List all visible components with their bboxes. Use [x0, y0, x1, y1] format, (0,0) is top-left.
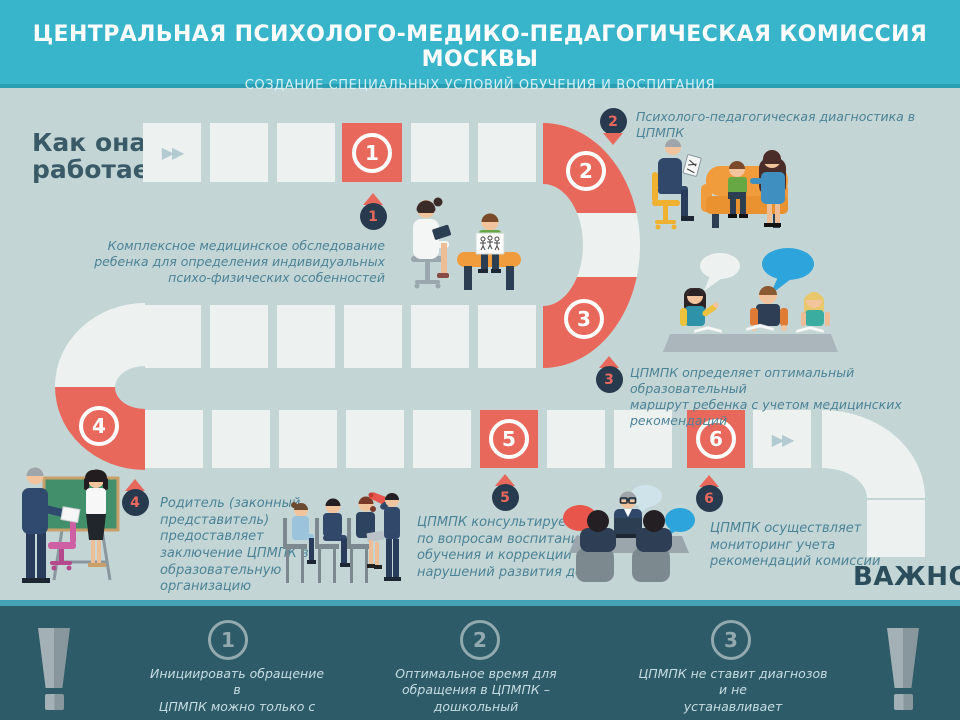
- board-square: [143, 305, 201, 368]
- step-2-number: 2: [566, 151, 606, 191]
- board-square: [210, 305, 268, 368]
- path-turn-exit-inner: [822, 468, 867, 498]
- pin-step-3: 3: [594, 356, 624, 393]
- illustration-children-study: [658, 238, 843, 356]
- board-square: [547, 410, 605, 468]
- illustration-medical-exam: [393, 193, 545, 296]
- board-square-step-5: 5: [480, 410, 538, 468]
- page-subtitle: СОЗДАНИЕ СПЕЦИАЛЬНЫХ УСЛОВИЙ ОБУЧЕНИЯ И …: [0, 78, 960, 93]
- board-square: [212, 410, 270, 468]
- important-item-2-text: Оптимальное время для обращения в ЦПМПК …: [381, 666, 571, 720]
- pin-number: 3: [596, 366, 623, 393]
- board-square: [145, 410, 203, 468]
- important-item-3-text: ЦПМПК не ставит диагнозов и не устанавли…: [638, 666, 828, 720]
- step-1-label: Комплексное медицинское обследование реб…: [94, 238, 385, 286]
- board-square: [346, 410, 404, 468]
- important-item-3-number: 3: [711, 620, 751, 660]
- pin-number: 2: [600, 108, 627, 135]
- illustration-school-handover: [14, 458, 146, 606]
- board-square: [210, 123, 268, 182]
- path-turn-right-inner: [543, 184, 583, 306]
- header: ЦЕНТРАЛЬНАЯ ПСИХОЛОГО-МЕДИКО-ПЕДАГОГИЧЕС…: [0, 0, 960, 88]
- board-square-start: ▶▶: [143, 123, 201, 182]
- board-square: [277, 123, 335, 182]
- infographic-poster: ЦЕНТРАЛЬНАЯ ПСИХОЛОГО-МЕДИКО-ПЕДАГОГИЧЕС…: [0, 0, 960, 720]
- step-3-label: ЦПМПК определяет оптимальный образовател…: [630, 365, 960, 429]
- pin-step-1: 1: [358, 193, 388, 230]
- step-1-number: 1: [352, 133, 392, 173]
- important-item-2-number: 2: [460, 620, 500, 660]
- board-square: [411, 123, 469, 182]
- pin-number: 1: [360, 203, 387, 230]
- important-item-1-text: Инициировать обращение в ЦПМПК можно тол…: [147, 666, 327, 720]
- pin-arrow-icon: [603, 133, 623, 145]
- pin-step-5: 5: [490, 474, 520, 511]
- step-4-number: 4: [79, 406, 119, 446]
- board-square: [478, 305, 536, 368]
- board-square-step-1: 1: [342, 123, 402, 182]
- board-square: [344, 305, 402, 368]
- exclamation-icon: [33, 628, 75, 712]
- page-title: ЦЕНТРАЛЬНАЯ ПСИХОЛОГО-МЕДИКО-ПЕДАГОГИЧЕС…: [0, 22, 960, 72]
- pin-number: 5: [492, 484, 519, 511]
- board-square: [277, 305, 335, 368]
- board-square: [279, 410, 337, 468]
- step-3-number: 3: [564, 299, 604, 339]
- board-square: [478, 123, 536, 182]
- board-square: [413, 410, 471, 468]
- fast-forward-icon: ▶▶: [162, 143, 183, 162]
- important-heading: ВАЖНО!: [853, 562, 960, 592]
- illustration-consultation: [281, 492, 403, 590]
- exclamation-icon: [882, 628, 924, 712]
- step-5-number: 5: [489, 419, 529, 459]
- footer: 1 Инициировать обращение в ЦПМПК можно т…: [0, 600, 960, 720]
- important-item-1-number: 1: [208, 620, 248, 660]
- fast-forward-icon: ▶▶: [772, 430, 793, 449]
- path-turn-left-inner: [115, 366, 145, 409]
- pin-step-2: 2: [598, 108, 628, 145]
- illustration-monitoring: [558, 474, 700, 586]
- board-square: [411, 305, 469, 368]
